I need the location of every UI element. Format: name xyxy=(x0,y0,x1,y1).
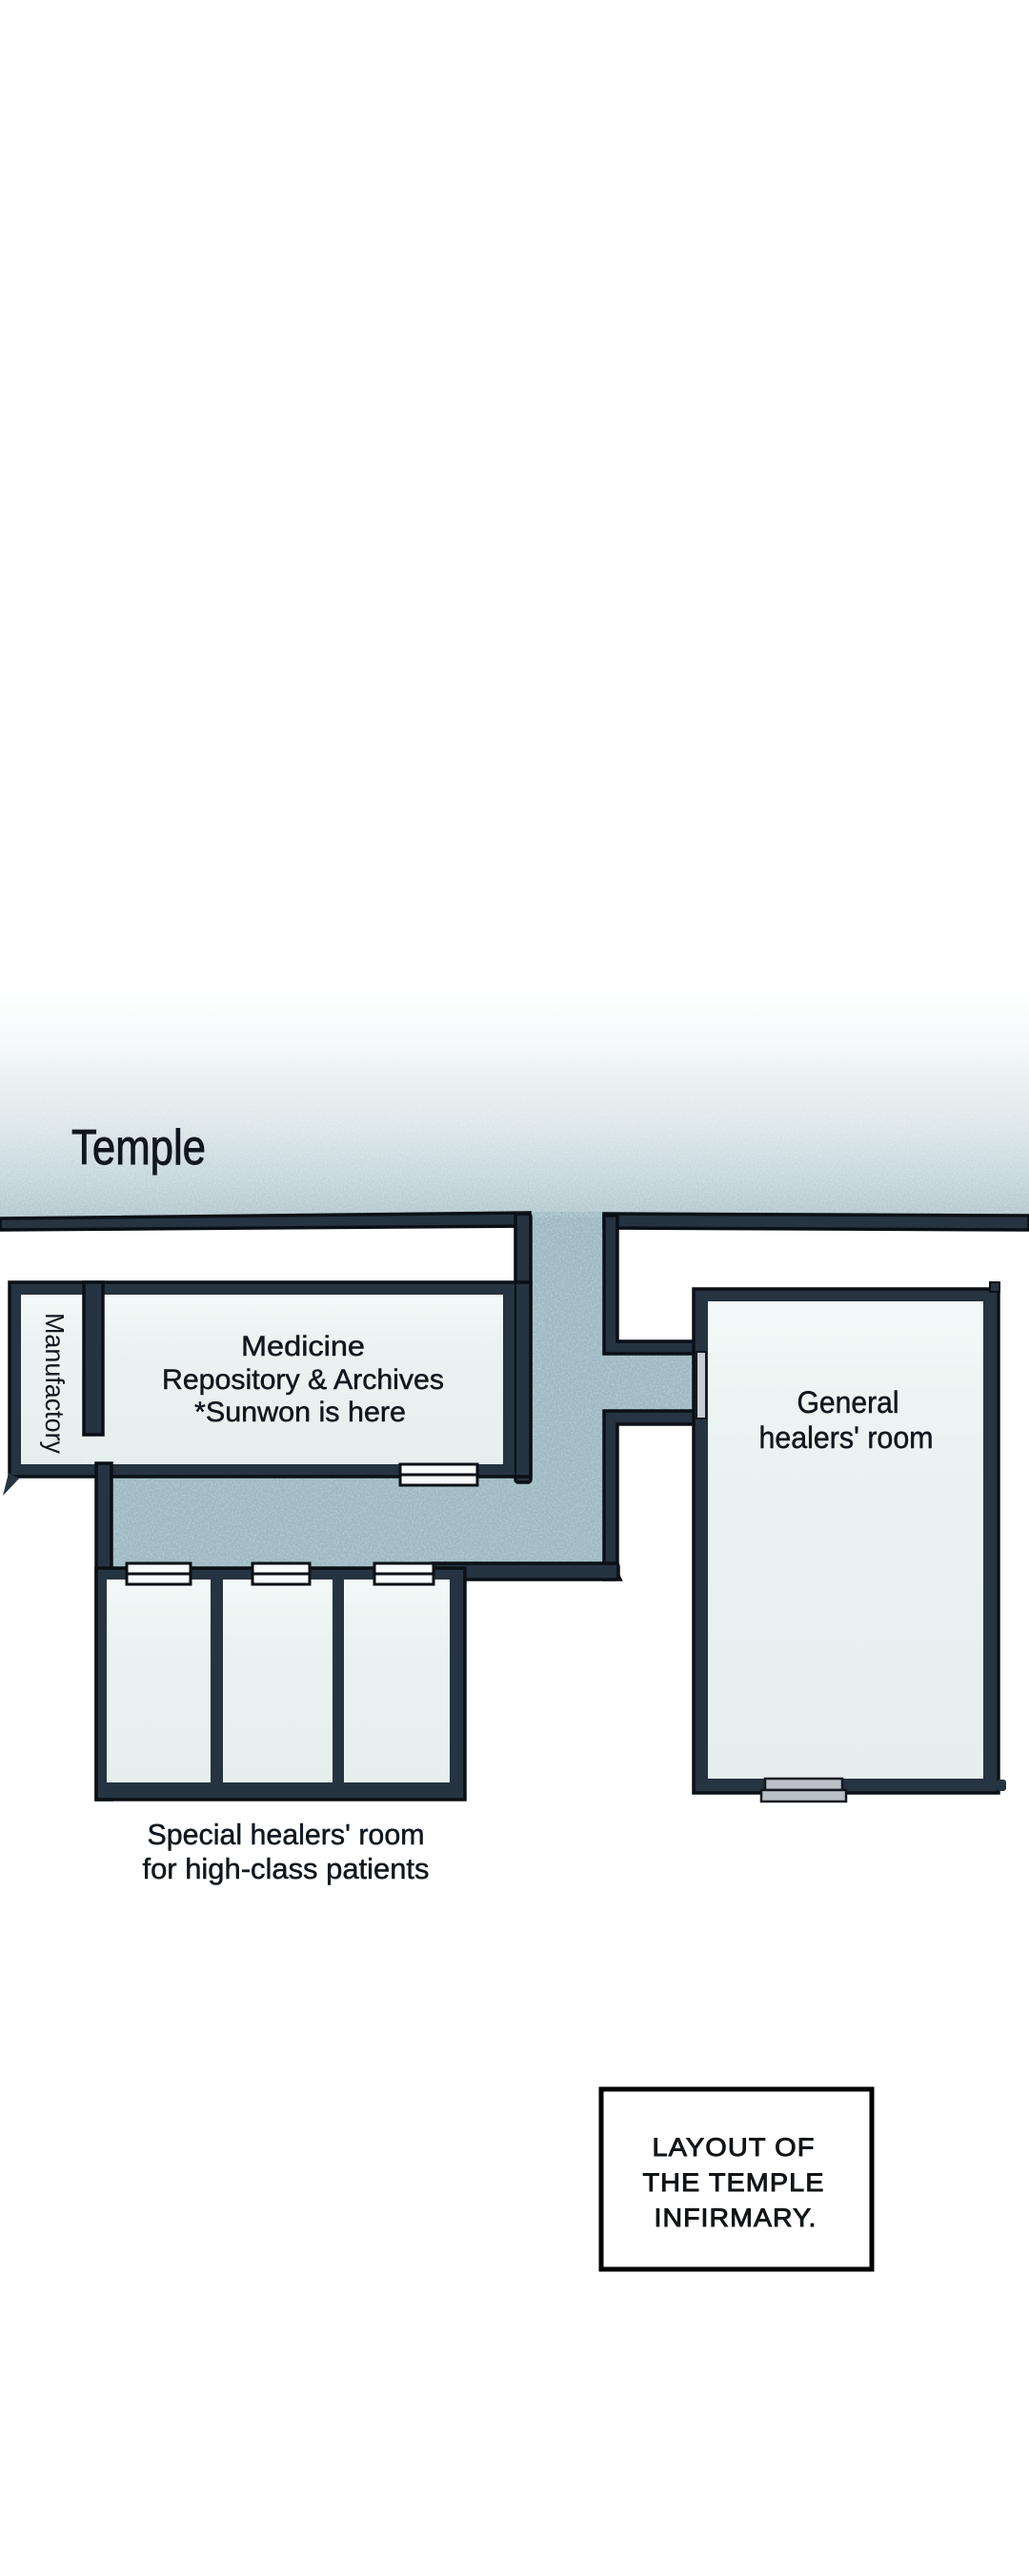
svg-text:Temple: Temple xyxy=(71,1120,206,1176)
svg-text:LAYOUT OF: LAYOUT OF xyxy=(653,2133,816,2162)
svg-text:INFIRMARY.: INFIRMARY. xyxy=(655,2204,817,2232)
svg-text:Manufactory: Manufactory xyxy=(40,1313,70,1454)
svg-text:healers' room: healers' room xyxy=(759,1420,934,1455)
svg-text:THE TEMPLE: THE TEMPLE xyxy=(643,2168,825,2197)
svg-text:General: General xyxy=(797,1385,899,1419)
svg-text:*Sunwon is here: *Sunwon is here xyxy=(194,1397,406,1428)
svg-text:Special healers' room: Special healers' room xyxy=(148,1818,425,1851)
svg-text:for high-class patients: for high-class patients xyxy=(143,1852,430,1885)
svg-text:Medicine: Medicine xyxy=(241,1331,365,1362)
svg-text:Repository & Archives: Repository & Archives xyxy=(162,1364,444,1396)
